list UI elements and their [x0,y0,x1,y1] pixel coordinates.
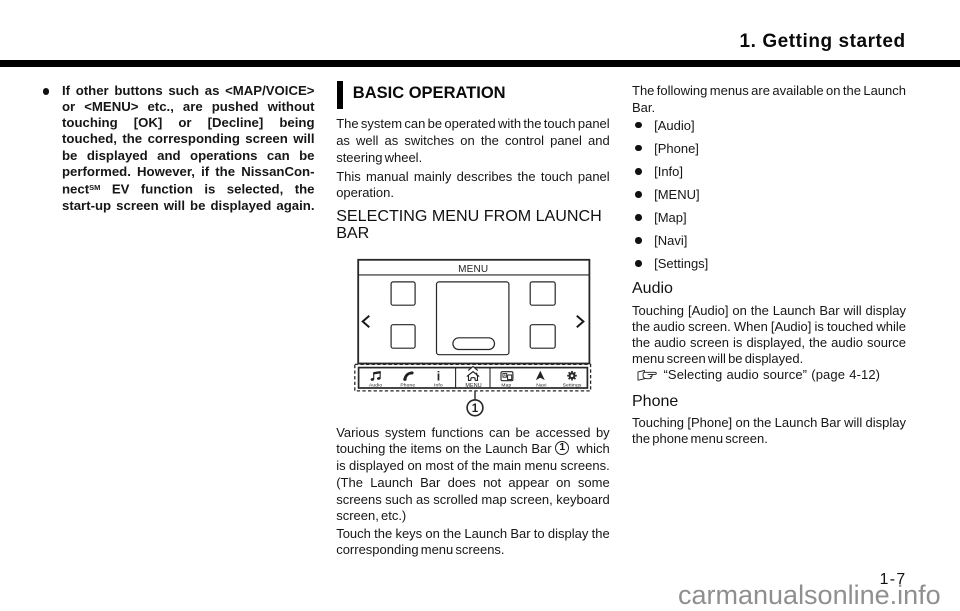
svg-text:i: i [437,370,440,384]
svg-text:Map: Map [501,383,511,389]
svg-text:Info: Info [434,383,443,389]
svg-text:MENU: MENU [458,264,488,275]
svg-text:Settings: Settings [563,383,582,389]
svg-text:MENU: MENU [465,383,481,389]
svg-text:Phone: Phone [400,383,415,389]
svg-text:Audio: Audio [369,383,382,389]
svg-text:Navi: Navi [536,383,546,389]
svg-text:1: 1 [472,403,479,415]
